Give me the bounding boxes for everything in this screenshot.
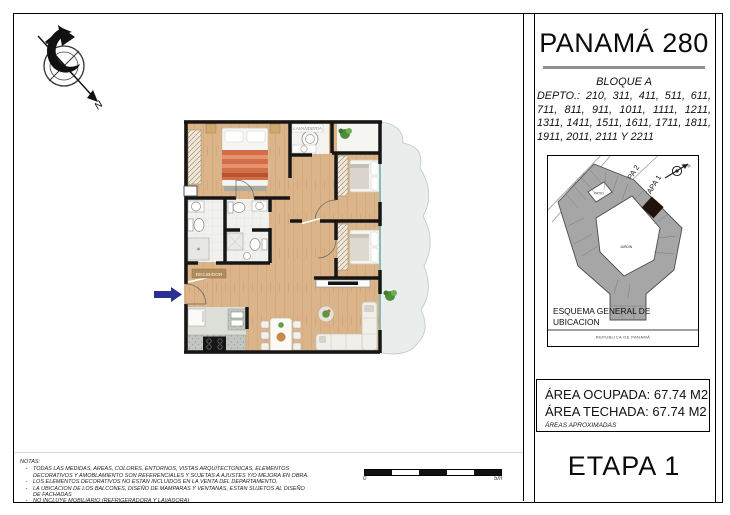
bed-bench: [224, 186, 266, 191]
panel-divider-line: [523, 13, 524, 501]
areas-box: ÁREA OCUPADA: 67.74 M2 ÁREA TECHADA: 67.…: [536, 379, 710, 432]
map-north-label: N: [686, 163, 692, 169]
scale-segment: [419, 470, 446, 475]
dining-set: [261, 318, 301, 353]
notes-title: NOTAS:: [20, 459, 340, 465]
project-title: PANAMÁ 280: [535, 28, 713, 59]
compass-rose-icon: [38, 25, 98, 102]
building-footprint: [558, 164, 682, 320]
sink: [256, 202, 264, 210]
tv: [328, 282, 358, 286]
areas-disclaimer: ÁREAS APROXIMADAS: [545, 422, 701, 429]
scale-segment: [447, 470, 474, 475]
bedroom3-bed: [350, 230, 380, 264]
chair: [261, 321, 269, 328]
sink: [244, 253, 251, 260]
note-item: - TODAS LAS MEDIDAS, AREAS, COLORES, ENT…: [20, 466, 340, 479]
depto-list: DEPTO.: 210, 311, 411, 511, 611, 711, 81…: [537, 90, 711, 144]
note-bullet: -: [20, 498, 33, 504]
scale-segment: [365, 470, 392, 475]
sink: [192, 202, 201, 211]
note-text: TODAS LAS MEDIDAS, AREAS, COLORES, ENTOR…: [33, 466, 309, 479]
note-text: NO INCLUYE MOBILIARIO (REFRIGERADORA Y L…: [33, 498, 309, 504]
scale-end-label: 5m: [494, 476, 502, 482]
chair: [293, 321, 301, 328]
laundry-label: LAVANDERIA: [293, 126, 322, 131]
chair: [261, 332, 269, 339]
jardin-label: JARDIN: [620, 245, 633, 249]
scale-segment: [474, 470, 501, 475]
duct: [184, 186, 197, 196]
bedroom3-closet: [337, 224, 348, 270]
north-compass: N: [18, 16, 110, 114]
refrigerator: [188, 309, 205, 326]
map-caption-line2: UBICACION: [553, 317, 600, 327]
map-country-label: REPUBLICA DE PANAMÁ: [596, 335, 650, 340]
floor-plan: LAVANDERIA: [140, 106, 440, 366]
bedroom2-bed: [350, 160, 380, 192]
map-compass-icon: [665, 164, 688, 178]
area-roofed-value: 67.74 M2: [652, 404, 706, 419]
toilet: [194, 219, 204, 232]
nightstand: [206, 124, 216, 133]
toilet: [233, 203, 245, 213]
location-map: PEDRO MIGUEL ETAPA 2 ETAPA 1 N PATIO JAR…: [548, 156, 698, 346]
master-closet: [188, 130, 201, 184]
chair: [293, 332, 301, 339]
area-roofed-label: ÁREA TECHADA:: [545, 404, 649, 419]
location-map-box: PEDRO MIGUEL ETAPA 2 ETAPA 1 N PATIO JAR…: [547, 155, 699, 347]
entry-label: RECIBIDOR: [196, 272, 223, 278]
map-caption-line1: ESQUEMA GENERAL DE: [553, 306, 651, 316]
area-occupied-label: ÁREA OCUPADA:: [545, 387, 650, 402]
nightstand: [270, 124, 280, 133]
title-rule: [543, 66, 705, 69]
notes: NOTAS: - TODAS LAS MEDIDAS, AREAS, COLOR…: [20, 459, 340, 505]
chair: [261, 343, 269, 350]
patio-label: PATIO: [594, 192, 604, 196]
area-roofed: ÁREA TECHADA: 67.74 M2: [545, 403, 701, 420]
stove: [203, 337, 226, 351]
entry-arrow-icon: [154, 287, 182, 302]
scale-segment: [392, 470, 419, 475]
area-occupied: ÁREA OCUPADA: 67.74 M2: [545, 386, 701, 403]
note-text: LA UBICACION DE LOS BALCONES, DISEÑO DE …: [33, 486, 309, 499]
scale-bar: [364, 469, 502, 476]
scale-start-label: 0: [363, 476, 366, 482]
note-bullet: -: [20, 466, 33, 479]
block-label: BLOQUE A: [535, 76, 713, 88]
balcony: [380, 122, 430, 354]
kitchen-sink: [231, 312, 243, 318]
note-item: - LA UBICACION DE LOS BALCONES, DISEÑO D…: [20, 486, 340, 499]
sink: [301, 146, 307, 152]
note-item: - NO INCLUYE MOBILIARIO (REFRIGERADORA Y…: [20, 498, 340, 504]
note-bullet: -: [20, 486, 33, 499]
chair: [293, 343, 301, 350]
toilet: [250, 239, 260, 251]
area-occupied-value: 67.74 M2: [654, 387, 708, 402]
notes-separator-line: [14, 452, 523, 453]
washer: [302, 131, 318, 147]
bedroom2-closet: [337, 156, 348, 196]
stage-label: ETAPA 1: [535, 451, 713, 482]
